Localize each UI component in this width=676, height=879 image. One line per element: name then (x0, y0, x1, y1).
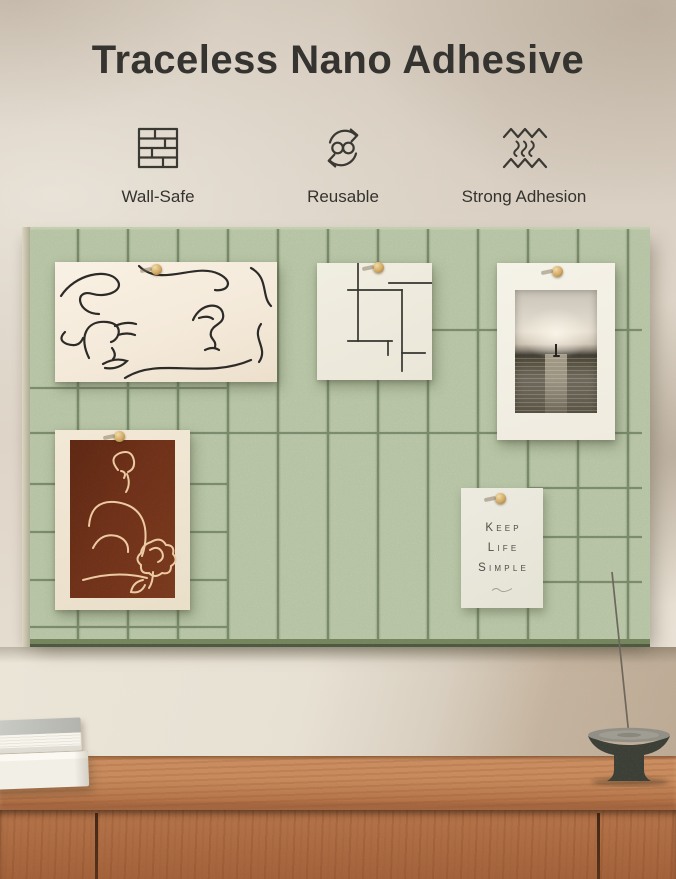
drawer-seam (597, 813, 600, 879)
seascape-photo-print (497, 263, 615, 440)
line-art-faces-poster (55, 262, 277, 382)
push-pin (552, 266, 563, 277)
water-texture (515, 358, 597, 413)
faces-line-art (55, 262, 277, 382)
signature-mark (491, 586, 513, 593)
reusable-cycle-icon (319, 124, 367, 172)
book-side-shading (74, 751, 89, 787)
lower-wall (0, 647, 676, 758)
page-title: Traceless Nano Adhesive (0, 38, 676, 83)
books-stack (0, 717, 93, 795)
push-pin (114, 431, 125, 442)
sailboat-silhouette (555, 344, 557, 355)
push-pin (373, 262, 384, 273)
push-pin (151, 264, 162, 275)
book (0, 751, 89, 790)
brick-wall-icon (134, 124, 182, 172)
figure-line-art-poster (55, 430, 190, 610)
feature-reusable: Reusable (253, 124, 433, 207)
incense-holder-bowl (584, 725, 674, 787)
push-pin (495, 493, 506, 504)
quote-line: Simple (461, 562, 543, 574)
feature-label: Reusable (253, 187, 433, 207)
product-image: Traceless Nano Adhesive Wall-Safe Reusab… (0, 0, 676, 879)
sideboard-top (0, 756, 676, 810)
figure-line-art (55, 430, 190, 610)
feature-label: Strong Adhesion (434, 187, 614, 207)
geometric-line-poster (317, 263, 432, 380)
adhesion-heat-waves-icon (500, 124, 548, 172)
feature-wall-safe: Wall-Safe (68, 124, 248, 207)
feature-strong-adhesion: Strong Adhesion (434, 124, 614, 207)
quote-text: Keep Life Simple (461, 522, 543, 582)
quote-line: Keep (461, 522, 543, 534)
drawer-seam (95, 813, 98, 879)
feature-label: Wall-Safe (68, 187, 248, 207)
quote-card: Keep Life Simple (461, 488, 543, 608)
sideboard-front (0, 810, 676, 879)
book (0, 717, 82, 753)
quote-line: Life (461, 542, 543, 554)
geometric-line-art (317, 263, 432, 380)
seascape-photo (515, 290, 597, 413)
